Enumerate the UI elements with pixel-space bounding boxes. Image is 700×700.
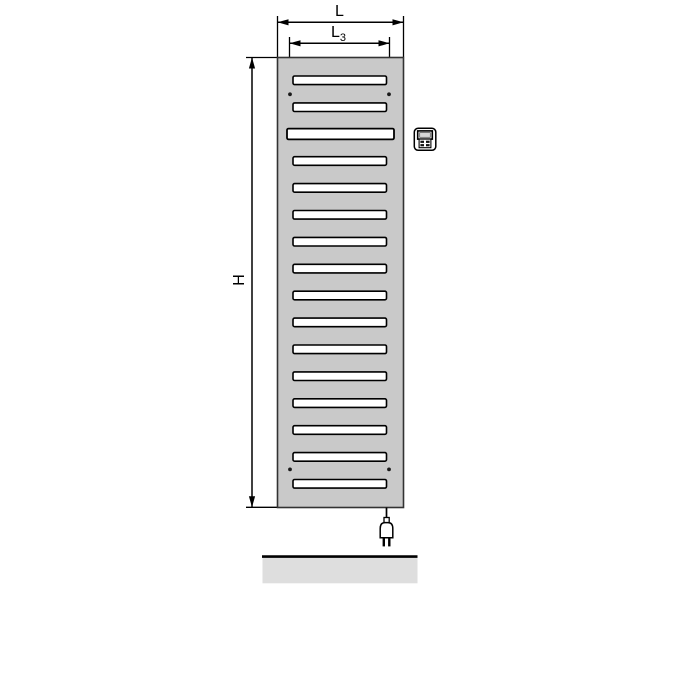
arrow-right-icon — [379, 40, 390, 46]
dimension-label-H: H — [232, 271, 250, 289]
control-unit-icon — [414, 128, 436, 150]
dimension-H — [246, 58, 277, 508]
radiator-slot — [293, 103, 387, 112]
control-button — [426, 141, 430, 143]
radiator-body — [278, 58, 404, 508]
drawing-svg — [0, 0, 700, 700]
arrow-up-icon — [249, 58, 255, 69]
arrow-left-icon — [278, 19, 289, 25]
dimension-label-L3: L3 — [331, 25, 346, 44]
mounting-screw-dot — [387, 468, 391, 472]
radiator-slot — [293, 372, 387, 381]
radiator-slot — [293, 480, 387, 489]
technical-drawing-canvas: L L3 H — [0, 0, 700, 700]
radiator-slot — [293, 237, 387, 246]
radiator-slot — [293, 345, 387, 354]
dimension-label-L3-base: L — [331, 24, 340, 41]
radiator-slot — [293, 184, 387, 193]
dimension-label-L: L — [335, 4, 344, 20]
radiator-slot — [293, 453, 387, 462]
mounting-screw-dot — [288, 92, 292, 96]
arrow-right-icon — [393, 19, 404, 25]
radiator-slot — [293, 399, 387, 408]
arrow-down-icon — [249, 496, 255, 507]
control-button — [420, 141, 424, 143]
radiator-slot — [293, 291, 387, 300]
mounting-screw-dot — [288, 468, 292, 472]
control-button — [426, 144, 430, 146]
radiator-slot — [293, 426, 387, 435]
control-button — [420, 144, 424, 146]
control-display-screen — [420, 133, 431, 138]
mounting-screw-dot — [387, 92, 391, 96]
power-plug-icon — [380, 508, 393, 547]
radiator-slot — [293, 318, 387, 327]
arrow-left-icon — [290, 40, 301, 46]
radiator-slot — [293, 157, 387, 166]
radiator-slot — [293, 76, 387, 85]
radiator-slot — [293, 211, 387, 220]
dimension-label-L3-subscript: 3 — [340, 32, 346, 44]
control-body — [419, 139, 431, 148]
floor-strip — [262, 557, 418, 584]
radiator-slot — [293, 264, 387, 273]
radiator-slot-wide — [287, 129, 394, 140]
